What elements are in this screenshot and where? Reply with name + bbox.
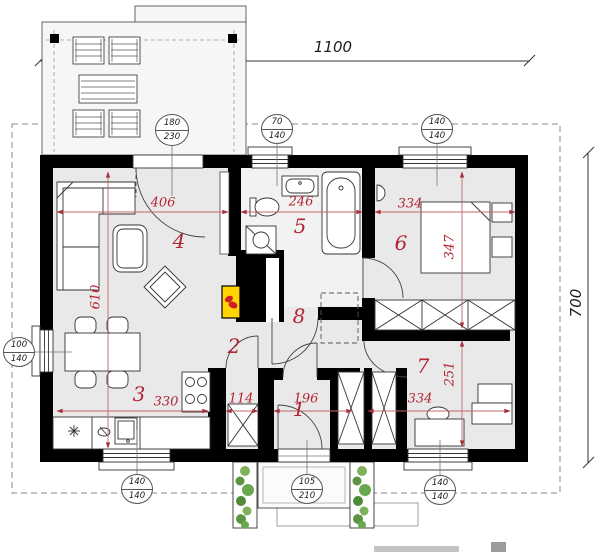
boiler [222,286,240,318]
callout-dining-window: 100 140 [3,337,35,367]
callout-width: 70 [262,116,292,130]
nightstand [492,203,512,222]
terrace [42,6,246,155]
callout-terrace-door: 180 230 [155,114,189,146]
room-number-office: 7 [417,354,430,378]
terrace-post [50,34,59,43]
dim-entry-width: 196 [294,392,319,407]
callout-height: 140 [4,353,34,366]
callout-kitchen-window: 140 140 [121,474,153,504]
callout-height: 210 [292,490,322,503]
overall-width-label: 1100 [314,38,352,56]
callout-width: 140 [425,477,455,491]
desk [415,419,464,446]
dim-kitchen-width: 330 [154,395,179,410]
room-number-bedroom: 6 [395,231,408,255]
overall-depth-label: 700 [567,289,585,318]
stove [182,372,210,412]
watermark-fragment [491,542,506,552]
nightstand [492,237,512,257]
toilet-bowl [255,198,279,216]
callout-height: 140 [262,130,292,143]
callout-width: 180 [156,117,188,131]
callout-entry-door: 105 210 [291,474,323,504]
dim-bedroom-height: 347 [443,235,458,260]
callout-height: 140 [122,490,152,503]
dim-office-height: 251 [443,362,458,387]
callout-width: 100 [4,339,34,353]
room-number-pantry: 2 [228,334,241,358]
callout-width: 140 [422,116,452,130]
dim-living-width: 406 [151,196,176,211]
terrace-post [228,34,237,43]
room-number-living: 4 [173,229,186,253]
callout-width: 140 [122,476,152,490]
chimney [236,250,284,322]
watermark-fragment [374,546,459,552]
room-number-bathroom: 5 [294,214,307,238]
callout-width: 105 [292,476,322,490]
callout-bedroom-window: 140 140 [421,114,453,144]
room-number-hall: 8 [293,304,306,328]
callout-height: 230 [156,131,188,144]
callout-bath-window: 70 140 [261,114,293,144]
floor-plan: 1100 700 1 2 3 4 5 6 7 8 406 246 334 610… [0,0,607,552]
shelf [472,403,512,424]
room-number-kitchen: 3 [133,382,146,406]
floor-plan-drawing [0,0,607,552]
callout-office-window: 140 140 [424,475,456,505]
callout-height: 140 [422,130,452,143]
dim-bedroom-width: 334 [398,197,423,212]
callout-height: 140 [425,491,455,504]
dim-pantry-width: 114 [229,392,254,407]
shelf [478,384,512,403]
entrance-porch [258,462,418,526]
cabinet-strip [220,172,229,254]
sink-basin [115,418,137,444]
dim-bathroom-width: 246 [289,195,314,210]
dim-living-height: 610 [89,285,104,310]
dim-closet-width: 334 [408,392,433,407]
